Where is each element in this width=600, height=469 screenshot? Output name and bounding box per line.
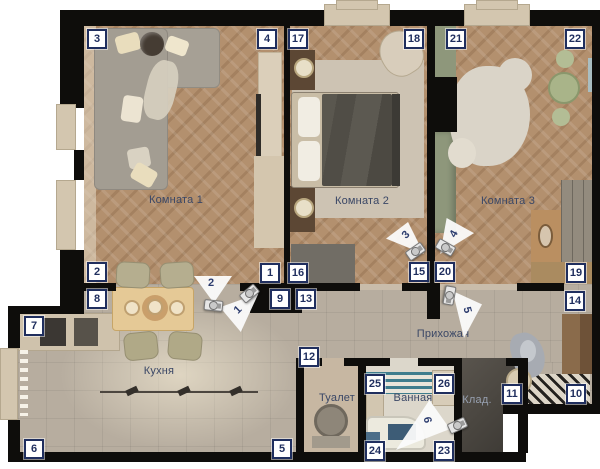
table-lamp [294, 198, 314, 218]
toilet-label: Туалет [319, 392, 355, 404]
view-cone-number: 2 [208, 277, 214, 289]
photo-marker-9[interactable]: 9 [270, 289, 290, 309]
wall [296, 358, 304, 453]
outside-cover-top-left [14, 280, 62, 307]
wall [8, 314, 20, 348]
photo-marker-3[interactable]: 3 [87, 29, 107, 49]
chair [159, 261, 195, 289]
photo-marker-24[interactable]: 24 [365, 441, 385, 461]
wall [358, 358, 366, 453]
wall [402, 283, 428, 291]
wall [8, 306, 84, 314]
photo-marker-18[interactable]: 18 [404, 29, 424, 49]
room2-label: Комната 2 [335, 195, 389, 207]
wall [427, 283, 440, 319]
photo-marker-26[interactable]: 26 [434, 374, 454, 394]
wall [366, 358, 390, 366]
photo-marker-4[interactable]: 4 [257, 29, 277, 49]
sink [74, 318, 98, 346]
floor-lamp [140, 32, 164, 56]
plate [124, 300, 140, 316]
balcony-sill-step [476, 0, 518, 10]
photo-marker-19[interactable]: 19 [566, 263, 586, 283]
stool [552, 108, 570, 126]
photo-marker-5[interactable]: 5 [272, 439, 292, 459]
mirror [538, 224, 553, 248]
wall [8, 420, 20, 454]
chair [115, 261, 150, 289]
wall [592, 10, 600, 412]
photo-marker-22[interactable]: 22 [565, 29, 585, 49]
bed-pillow [298, 141, 320, 181]
wall [284, 10, 290, 291]
photo-marker-20[interactable]: 20 [435, 262, 455, 282]
kitchen-label: Кухня [144, 365, 174, 377]
table-lamp [294, 58, 314, 78]
wall [503, 404, 600, 414]
plate [169, 300, 185, 316]
storage-bench [254, 156, 284, 248]
view-cone-number: 5 [460, 305, 473, 314]
storage-label: Клад. [462, 394, 491, 406]
radiator [20, 350, 28, 416]
kids-table [548, 72, 580, 104]
wall [60, 250, 84, 310]
photo-marker-1[interactable]: 1 [260, 263, 280, 283]
photo-marker-12[interactable]: 12 [299, 347, 319, 367]
cloud-rug-bump [448, 138, 476, 168]
toilet [314, 404, 348, 438]
camera-icon-2[interactable] [203, 299, 223, 312]
toilet-tank [312, 436, 350, 448]
floor-plan: Комната 1 Комната 2 Комната 3 Прихожая К… [0, 0, 600, 469]
photo-marker-8[interactable]: 8 [87, 289, 107, 309]
photo-marker-14[interactable]: 14 [565, 291, 585, 311]
view-cone-number: 6 [421, 416, 434, 424]
wall [74, 150, 84, 180]
cloud-rug-bump [498, 58, 532, 92]
tv [256, 94, 261, 156]
bed-footboard [392, 94, 400, 186]
window [56, 180, 76, 250]
wall [74, 26, 84, 108]
bathroom-label: Ванная [394, 392, 433, 404]
view-cone-number: 3 [400, 229, 413, 242]
wall [517, 283, 564, 291]
view-cone-number: 4 [447, 228, 460, 239]
wall [530, 10, 600, 26]
photo-marker-2[interactable]: 2 [87, 262, 107, 282]
photo-marker-21[interactable]: 21 [446, 29, 466, 49]
balcony-sill-step [336, 0, 378, 10]
stool [556, 50, 574, 68]
shaft [427, 77, 457, 132]
photo-marker-25[interactable]: 25 [365, 374, 385, 394]
blanket [322, 94, 392, 186]
photo-marker-23[interactable]: 23 [434, 441, 454, 461]
wall [454, 358, 462, 453]
door-threshold [360, 284, 402, 290]
pillow [120, 95, 143, 124]
window [0, 348, 18, 420]
plate [147, 299, 163, 315]
photo-marker-7[interactable]: 7 [24, 316, 44, 336]
window [56, 104, 76, 150]
chair [123, 330, 160, 361]
entry-wardrobe [562, 314, 592, 374]
photo-marker-16[interactable]: 16 [288, 263, 308, 283]
room1-label: Комната 1 [149, 194, 203, 206]
photo-marker-11[interactable]: 11 [502, 384, 522, 404]
chair [167, 331, 203, 362]
view-cone-number: 1 [232, 304, 245, 317]
photo-marker-13[interactable]: 13 [296, 289, 316, 309]
photo-marker-17[interactable]: 17 [288, 29, 308, 49]
photo-marker-10[interactable]: 10 [566, 384, 586, 404]
shelving [561, 180, 592, 262]
room3-label: Комната 3 [481, 195, 535, 207]
bed-pillow [298, 97, 320, 137]
photo-marker-6[interactable]: 6 [24, 439, 44, 459]
photo-marker-15[interactable]: 15 [409, 262, 429, 282]
hallway-label: Прихожая [417, 328, 470, 340]
wall [427, 10, 435, 283]
